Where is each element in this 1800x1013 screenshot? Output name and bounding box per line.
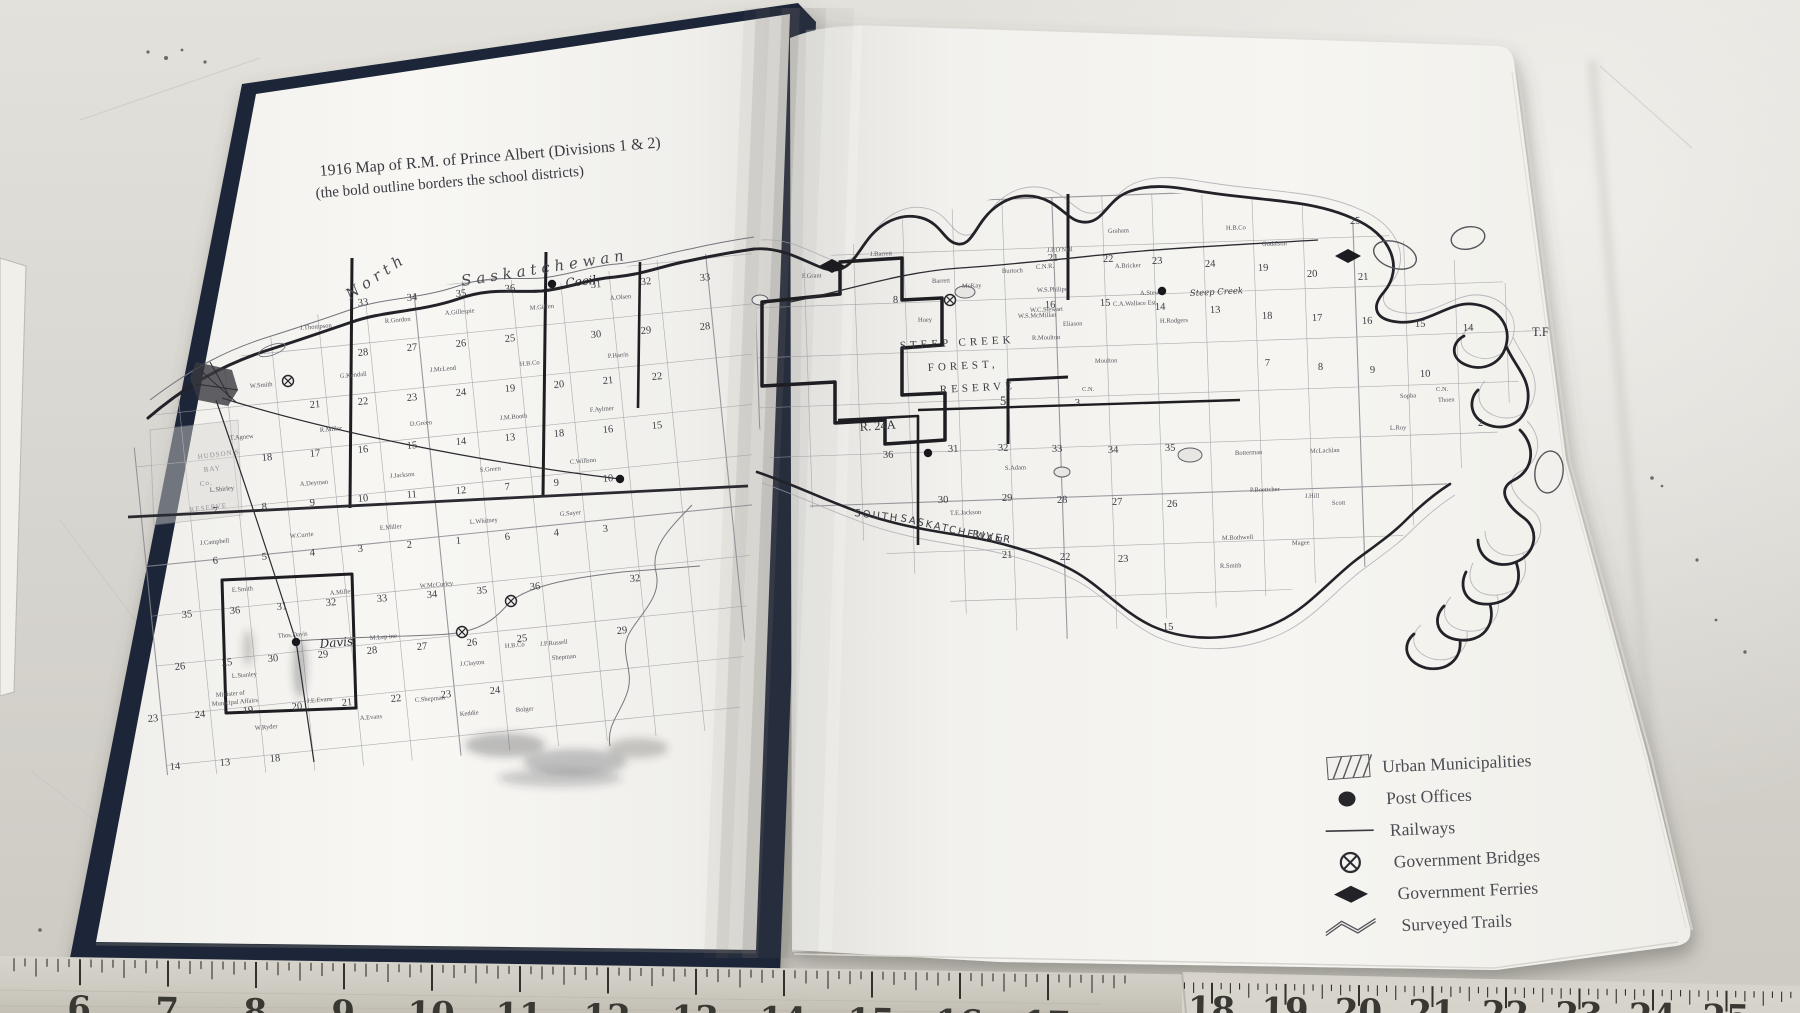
section-number: 9 — [309, 498, 315, 509]
landowner-name: L.Roy — [1390, 424, 1407, 432]
section-number: 10 — [602, 473, 613, 485]
section-number: 7 — [1265, 358, 1271, 369]
section-number: 13 — [1210, 305, 1221, 316]
section-number: 6 — [212, 556, 218, 567]
ruler-number: 17 — [1023, 1004, 1071, 1013]
section-number: 35 — [181, 609, 192, 621]
section-number: 24 — [194, 709, 206, 721]
section-number: 16 — [1362, 316, 1373, 327]
government-bridge-symbol — [457, 627, 468, 638]
section-number: 29 — [317, 649, 328, 661]
landowner-name: Hoey — [918, 316, 933, 324]
railways-icon — [1326, 830, 1374, 831]
map-label: C.N. — [1436, 386, 1449, 393]
legend-label: Post Offices — [1386, 785, 1473, 809]
section-number: 20 — [1307, 269, 1318, 280]
section-number: 22 — [651, 371, 662, 383]
ruler-number: 15 — [847, 1001, 895, 1013]
section-number: 10 — [1420, 369, 1431, 380]
landowner-name: Sopha — [1400, 392, 1417, 400]
section-number: 31 — [276, 601, 287, 613]
section-number: 27 — [406, 342, 417, 354]
section-number: 26 — [466, 637, 477, 649]
section-number: 8 — [893, 295, 899, 306]
section-number: 19 — [504, 383, 515, 395]
ruler-number: 20 — [1334, 992, 1382, 1013]
section-number: 33 — [1052, 444, 1063, 455]
section-number: 36 — [529, 581, 540, 593]
section-number: 2 — [1478, 418, 1484, 429]
section-number: 20 — [291, 701, 302, 713]
landowner-name: Thoen — [1438, 396, 1456, 404]
ruler-number: 21 — [1408, 993, 1456, 1013]
landowner-name: Eliason — [1063, 320, 1083, 328]
landowner-name: McLachlan — [1310, 447, 1341, 455]
section-number: 36 — [229, 605, 240, 617]
post-office-dot — [292, 638, 300, 646]
landowner-name: McKay — [962, 282, 982, 290]
landowner-name: R.Smith — [1220, 562, 1242, 570]
landowner-name: S.Adam — [1005, 464, 1026, 472]
section-number: 26 — [174, 661, 185, 673]
map-label: R. 24A — [859, 418, 896, 434]
section-number: 7 — [504, 482, 510, 493]
section-number: 32 — [325, 597, 336, 609]
section-number: 25 — [1350, 216, 1361, 227]
section-number: 24 — [489, 685, 501, 697]
ruler-number: 24 — [1628, 996, 1676, 1013]
section-number: 22 — [357, 396, 368, 408]
landowner-name: J.Barrett — [870, 250, 893, 258]
section-number: 30 — [938, 495, 949, 506]
section-number: 13 — [504, 432, 515, 444]
section-number: 18 — [269, 753, 280, 765]
landowner-name: J.P.O'Neil — [1047, 246, 1073, 254]
section-number: 21 — [309, 399, 320, 411]
landowner-name: W.S.Philips — [1037, 286, 1068, 294]
section-number: 21 — [602, 375, 613, 387]
section-number: 21 — [1358, 272, 1369, 283]
section-number: 34 — [1108, 445, 1120, 456]
landowner-name: W.S.McMillan — [1018, 312, 1057, 320]
ruler-number: 7 — [155, 990, 179, 1013]
ruler-number: 13 — [671, 998, 719, 1013]
section-number: 25 — [504, 333, 515, 345]
landowner-name: H.B.Co — [1226, 224, 1246, 232]
section-number: 10 — [357, 493, 368, 505]
section-number: 3 — [357, 544, 363, 555]
section-number: 13 — [219, 757, 230, 769]
section-number: 36 — [883, 450, 894, 461]
section-number: 23 — [147, 713, 158, 725]
government-bridge-symbol — [945, 295, 956, 306]
section-number: 5 — [261, 552, 267, 563]
landowner-name: Barrett — [932, 277, 950, 285]
map-label: T.F — [1532, 325, 1549, 339]
section-number: 29 — [640, 325, 651, 337]
section-number: 9 — [1370, 365, 1376, 376]
landowner-name: Gudalson — [1262, 240, 1288, 248]
section-number: 30 — [590, 329, 601, 341]
section-number: 14 — [169, 761, 181, 773]
section-number: 21 — [341, 697, 352, 709]
ruler-number: 23 — [1555, 995, 1603, 1013]
section-number: 11 — [406, 489, 417, 501]
section-number: 17 — [1312, 313, 1323, 324]
section-number: 26 — [455, 338, 466, 350]
section-number: 33 — [376, 593, 387, 605]
section-number: 18 — [261, 452, 272, 464]
section-number: 23 — [406, 392, 417, 404]
map-label: C.N. — [1082, 386, 1095, 393]
section-number: 26 — [1167, 499, 1178, 510]
legend-label: Railways — [1390, 817, 1456, 840]
section-number: 35 — [1165, 443, 1176, 454]
photo-open-book-map: NorthSaskatchewanSOUTHSASKATCHEWANRIVERC… — [0, 0, 1800, 1013]
ruler-number: 22 — [1481, 994, 1529, 1013]
section-number: 1 — [455, 536, 461, 547]
section-number: 23 — [1152, 256, 1163, 267]
landowner-name: M.Bothwell — [1222, 534, 1254, 542]
ruler-number: 16 — [935, 1002, 983, 1013]
section-number: 17 — [309, 448, 320, 460]
section-number: 21 — [1002, 550, 1013, 561]
section-number: 14 — [455, 436, 467, 448]
landowner-name: Graham — [1108, 227, 1129, 235]
section-number: 22 — [1060, 552, 1071, 563]
ruler-number: 12 — [583, 997, 631, 1013]
section-number: 29 — [1002, 493, 1013, 504]
map-label: 5 — [1000, 394, 1006, 408]
section-number: 24 — [1205, 259, 1217, 270]
section-number: 7 — [212, 506, 218, 517]
section-number: 19 — [1258, 263, 1269, 274]
section-number: 12 — [455, 485, 466, 497]
landowner-name: A.Bricker — [1115, 262, 1142, 270]
landowner-name: F.Grant — [802, 272, 822, 280]
section-number: 15 — [651, 420, 662, 432]
post-office-dot — [924, 449, 932, 457]
landowner-name: Scott — [1332, 500, 1346, 507]
section-number: 14 — [1155, 302, 1167, 313]
ruler-number: 11 — [495, 996, 543, 1013]
section-number: 14 — [1463, 323, 1475, 334]
landowner-name: Botterman — [1235, 449, 1263, 457]
section-number: 25 — [221, 657, 232, 669]
section-number: 9 — [553, 478, 559, 489]
post-office-dot — [548, 280, 556, 288]
section-number: 31 — [948, 444, 959, 455]
government-bridge-symbol — [283, 376, 294, 387]
section-number: 16 — [357, 444, 368, 456]
government-bridge-symbol — [506, 596, 517, 607]
section-number: 3 — [1075, 398, 1081, 409]
section-number: 28 — [1057, 495, 1068, 506]
ruler-number: 10 — [407, 994, 455, 1013]
ruler-number: 8 — [243, 992, 267, 1013]
section-number: 15 — [1415, 319, 1426, 330]
section-number: 16 — [602, 424, 613, 436]
section-number: 35 — [476, 585, 487, 597]
section-number: 35 — [455, 288, 466, 300]
section-number: 30 — [267, 653, 278, 665]
landowner-name: J.Hill — [1305, 492, 1320, 500]
urban-municipalities-icon — [1327, 754, 1373, 779]
ruler-number: 19 — [1261, 991, 1309, 1013]
section-number: 23 — [1118, 554, 1129, 565]
scene-svg: NorthSaskatchewanSOUTHSASKATCHEWANRIVERC… — [0, 0, 1800, 1013]
section-number: 33 — [357, 297, 368, 309]
section-number: 21 — [1048, 253, 1059, 264]
section-number: 8 — [261, 502, 267, 513]
section-number: 3 — [602, 524, 608, 535]
section-number: 22 — [390, 693, 401, 705]
landowner-name: P.Boettcher — [1250, 486, 1281, 494]
landowner-name: H.Rodgers — [1160, 317, 1189, 325]
section-number: 2 — [406, 540, 412, 551]
landowner-name: Moulton — [1095, 357, 1118, 365]
landowner-name: T.E.Jackson — [950, 509, 982, 517]
section-number: 15 — [406, 440, 417, 452]
landowner-name: Magee — [1292, 539, 1310, 547]
ruler-number: 25 — [1702, 997, 1750, 1013]
section-number: 36 — [504, 283, 515, 295]
ruler-number: 6 — [67, 989, 91, 1013]
section-number: 15 — [1163, 622, 1174, 633]
section-number: 34 — [406, 292, 418, 304]
section-number: 22 — [1103, 254, 1114, 265]
section-number: 32 — [640, 276, 651, 288]
ruler-number: 14 — [759, 1000, 807, 1013]
section-number: 8 — [1318, 362, 1324, 373]
section-number: 28 — [357, 347, 368, 359]
section-number: 33 — [699, 272, 710, 284]
section-number: 27 — [416, 641, 427, 653]
section-number: 18 — [553, 428, 564, 440]
section-number: 15 — [1100, 298, 1111, 309]
section-number: 28 — [699, 321, 710, 333]
map-label: C.N.R. — [1036, 263, 1055, 271]
ruler-number: 9 — [331, 993, 355, 1013]
section-number: 20 — [553, 379, 564, 391]
ruler-number: 18 — [1187, 989, 1235, 1013]
section-number: 6 — [504, 532, 510, 543]
post-office-dot — [1158, 287, 1166, 295]
section-number: 18 — [1262, 311, 1273, 322]
section-number: 31 — [590, 279, 601, 291]
section-number: 24 — [455, 387, 467, 399]
section-number: 34 — [426, 589, 438, 601]
section-number: 32 — [629, 573, 640, 585]
landowner-name: R.Moulton — [1032, 334, 1061, 342]
landowner-name: Burtoch — [1002, 267, 1024, 275]
section-number: 29 — [616, 625, 627, 637]
section-number: 27 — [1112, 497, 1123, 508]
section-number: 32 — [998, 443, 1009, 454]
section-number: 28 — [366, 645, 377, 657]
section-number: 19 — [242, 705, 253, 717]
post-office-dot — [616, 475, 624, 483]
